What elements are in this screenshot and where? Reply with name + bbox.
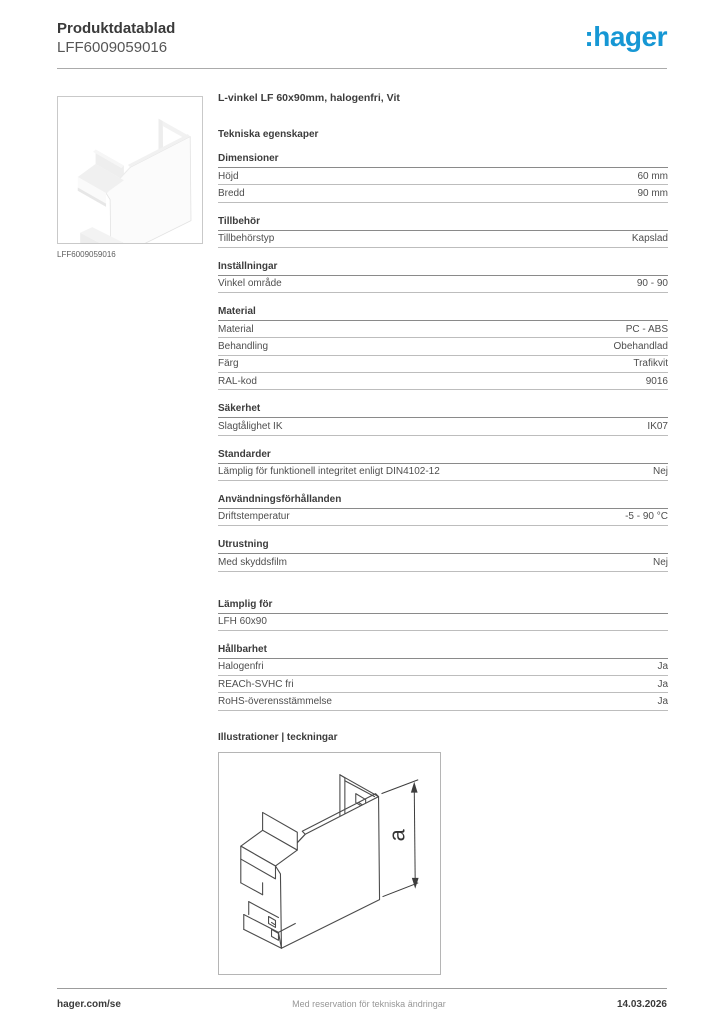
spec-value: Ja (657, 661, 668, 673)
spec-section: Hållbarhet Halogenfri Ja REACh-SVHC fri … (218, 644, 668, 711)
spec-section: Dimensioner Höjd 60 mm Bredd 90 mm (218, 153, 668, 203)
page-header: Produktdatablad LFF6009059016 :hager (57, 20, 667, 58)
spec-row: RoHS-överensstämmelse Ja (218, 693, 668, 710)
spec-label: Höjd (218, 171, 251, 183)
spec-rows: Med skyddsfilm Nej (218, 554, 668, 571)
spec-section-title: Användningsförhållanden (218, 494, 668, 509)
spec-rows: Material PC - ABS Behandling Obehandlad … (218, 321, 668, 390)
spec-value: Nej (653, 466, 668, 478)
spec-rows: Slagtålighet IK IK07 (218, 418, 668, 435)
doc-type-title: Produktdatablad (57, 20, 175, 39)
spec-section: Tillbehör Tillbehörstyp Kapslad (218, 216, 668, 248)
spec-rows: Halogenfri Ja REACh-SVHC fri Ja RoHS-öve… (218, 659, 668, 711)
spec-value: 90 mm (637, 188, 668, 200)
header-titles: Produktdatablad LFF6009059016 (57, 20, 175, 58)
spec-section: Säkerhet Slagtålighet IK IK07 (218, 403, 668, 435)
spec-section-title: Säkerhet (218, 403, 668, 418)
spec-label: Halogenfri (218, 661, 276, 673)
spec-row: LFH 60x90 (218, 614, 668, 631)
header-divider (57, 68, 667, 69)
spec-label: Vinkel område (218, 278, 294, 290)
spec-section-title: Material (218, 306, 668, 321)
spec-row: Behandling Obehandlad (218, 338, 668, 355)
spec-value: Nej (653, 557, 668, 569)
spec-row: Bredd 90 mm (218, 185, 668, 202)
illustrations-heading: Illustrationer | teckningar (218, 732, 668, 743)
spec-section-title: Tillbehör (218, 216, 668, 231)
product-photo (57, 96, 203, 244)
technical-drawing-svg: a (219, 753, 440, 974)
spec-rows: Vinkel område 90 - 90 (218, 276, 668, 293)
product-title: L-vinkel LF 60x90mm, halogenfri, Vit (218, 92, 668, 104)
product-reference: LFF6009059016 (57, 39, 175, 58)
spec-row: Slagtålighet IK IK07 (218, 418, 668, 435)
product-image-column: LFF6009059016 (57, 96, 203, 259)
spec-label: Bredd (218, 188, 257, 200)
spec-section: Användningsförhållanden Driftstemperatur… (218, 494, 668, 526)
spec-section: Material Material PC - ABS Behandling Ob… (218, 306, 668, 390)
spec-section-title: Lämplig för (218, 599, 668, 614)
spec-section: Utrustning Med skyddsfilm Nej (218, 539, 668, 571)
footer-disclaimer: Med reservation för tekniska ändringar (292, 999, 446, 1009)
spec-label: REACh-SVHC fri (218, 679, 306, 691)
spec-label: Driftstemperatur (218, 511, 302, 523)
spec-label: Med skyddsfilm (218, 557, 299, 569)
spec-row: Färg Trafikvit (218, 356, 668, 373)
spec-row: Lämplig för funktionell integritet enlig… (218, 464, 668, 481)
main-content: L-vinkel LF 60x90mm, halogenfri, Vit Tek… (218, 92, 668, 975)
spec-section-title: Standarder (218, 449, 668, 464)
spec-value: -5 - 90 °C (625, 511, 668, 523)
spec-row: Med skyddsfilm Nej (218, 554, 668, 571)
dimension-label-a: a (384, 828, 409, 841)
technical-drawing: a (218, 752, 441, 975)
datasheet-page: Produktdatablad LFF6009059016 :hager (0, 0, 724, 1024)
spec-row: Driftstemperatur -5 - 90 °C (218, 509, 668, 526)
spec-row: Höjd 60 mm (218, 168, 668, 185)
spec-label: Material (218, 324, 266, 336)
footer-website: hager.com/se (57, 999, 121, 1010)
spec-label: RAL-kod (218, 376, 269, 388)
spec-rows: Höjd 60 mm Bredd 90 mm (218, 168, 668, 203)
spec-section: Standarder Lämplig för funktionell integ… (218, 449, 668, 481)
spec-value: IK07 (647, 421, 668, 433)
spec-rows: Lämplig för funktionell integritet enlig… (218, 464, 668, 481)
spec-label: Tillbehörstyp (218, 233, 286, 245)
spec-section-title: Utrustning (218, 539, 668, 554)
spec-label: Behandling (218, 341, 280, 353)
spec-row: Vinkel område 90 - 90 (218, 276, 668, 293)
spec-section-title: Hållbarhet (218, 644, 668, 659)
spec-value: Ja (657, 696, 668, 708)
spec-sections: Dimensioner Höjd 60 mm Bredd 90 mm Tillb… (218, 153, 668, 711)
technical-properties-heading: Tekniska egenskaper (218, 129, 668, 140)
spec-section: Inställningar Vinkel område 90 - 90 (218, 261, 668, 293)
spec-row: Halogenfri Ja (218, 659, 668, 676)
spec-label: Lämplig för funktionell integritet enlig… (218, 466, 452, 478)
spec-value: Ja (657, 679, 668, 691)
product-photo-caption: LFF6009059016 (57, 250, 203, 259)
spec-row: REACh-SVHC fri Ja (218, 676, 668, 693)
spec-row: Material PC - ABS (218, 321, 668, 338)
spec-label: Färg (218, 358, 251, 370)
spec-value: Kapslad (632, 233, 668, 245)
spec-value: 9016 (646, 376, 668, 388)
hager-logo: :hager (584, 23, 667, 51)
footer-date: 14.03.2026 (617, 999, 667, 1010)
spec-row: Tillbehörstyp Kapslad (218, 231, 668, 248)
spec-value: 90 - 90 (637, 278, 668, 290)
spec-value: Trafikvit (633, 358, 668, 370)
spec-section-title: Inställningar (218, 261, 668, 276)
spec-value: 60 mm (637, 171, 668, 183)
spec-section-title: Dimensioner (218, 153, 668, 168)
spec-rows: Tillbehörstyp Kapslad (218, 231, 668, 248)
spec-value: Obehandlad (614, 341, 669, 353)
footer-divider (57, 988, 667, 989)
spec-label: Slagtålighet IK (218, 421, 295, 433)
product-photo-render (58, 97, 202, 243)
spec-label: LFH 60x90 (218, 616, 279, 628)
spec-rows: LFH 60x90 (218, 614, 668, 631)
spec-label: RoHS-överensstämmelse (218, 696, 344, 708)
spec-value: PC - ABS (626, 324, 668, 336)
spec-row: RAL-kod 9016 (218, 373, 668, 390)
spec-section: Lämplig för LFH 60x90 (218, 599, 668, 631)
page-footer: hager.com/se Med reservation för teknisk… (57, 999, 667, 1010)
spec-rows: Driftstemperatur -5 - 90 °C (218, 509, 668, 526)
